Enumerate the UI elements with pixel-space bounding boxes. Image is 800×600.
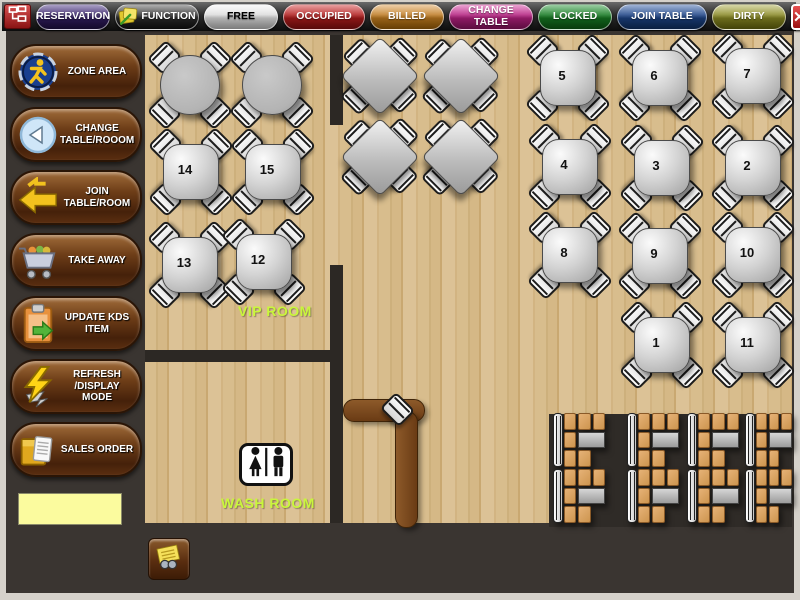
table-2[interactable]: 2: [714, 129, 792, 207]
cushion: [712, 413, 724, 430]
toolbar-button-locked[interactable]: LOCKED: [538, 4, 612, 30]
pos-floor-plan-window: VIP ROOM WASH ROOM 141513125674328910111: [0, 0, 800, 600]
table-top: 9: [632, 228, 688, 284]
booth-backrest-icon: [627, 469, 637, 523]
table-round-0[interactable]: [151, 46, 229, 124]
toolbar-button-join_table[interactable]: JOIN TABLE: [617, 4, 707, 30]
table-number: 1: [652, 335, 659, 350]
sticky-note-button[interactable]: [148, 538, 190, 580]
sidebar-button-label: SALES ORDER: [60, 444, 134, 456]
cushion: [638, 506, 650, 523]
sidebar-button-update_kds_item[interactable]: UPDATE KDS ITEM: [10, 296, 142, 351]
corner-counter: [395, 411, 418, 528]
lightning-icon: [16, 364, 60, 410]
table-number: 4: [560, 157, 567, 172]
note-input[interactable]: [18, 493, 122, 525]
vip-room-label: VIP ROOM: [238, 303, 312, 319]
wall: [330, 265, 343, 523]
table-top: 6: [632, 50, 688, 106]
toolbar-button-label: DIRTY: [733, 11, 765, 22]
toolbar-button-function[interactable]: FUNCTION: [115, 4, 199, 30]
sidebar-button-label: JOIN TABLE/ROOM: [60, 186, 134, 209]
table-number: 7: [743, 66, 750, 81]
restroom-icon: [243, 444, 289, 485]
toolbar: RESERVATIONFUNCTIONFREEOCCUPIEDBILLEDCHA…: [2, 2, 796, 31]
sidebar-button-change_table_room[interactable]: CHANGE TABLE/ROOOM: [10, 107, 142, 162]
booth-cushions: [564, 413, 605, 467]
table-round-1[interactable]: [233, 46, 311, 124]
booth-cushions: [638, 469, 679, 523]
cushion: [593, 413, 605, 430]
cushion: [769, 469, 780, 486]
cushion: [638, 432, 650, 449]
cushion: [578, 413, 590, 430]
booth-backrest-icon: [687, 469, 697, 523]
cushion: [593, 469, 605, 486]
merge-arrow-icon: [16, 175, 60, 221]
table-top: 12: [236, 234, 292, 290]
close-button[interactable]: ✕: [791, 4, 800, 30]
table-10[interactable]: 10: [714, 216, 792, 294]
booth-seat-4[interactable]: [745, 413, 792, 467]
table-top: 1: [634, 317, 690, 373]
booth-backrest-icon: [553, 469, 563, 523]
cushion: [638, 413, 650, 430]
cushion: [769, 506, 780, 523]
cushion: [698, 469, 710, 486]
table-top: 4: [542, 139, 598, 195]
booth-table: [769, 488, 792, 505]
cushion: [781, 469, 792, 486]
wall: [145, 350, 343, 362]
cart-icon: [16, 238, 60, 284]
close-icon: ✕: [793, 8, 800, 26]
cushion: [652, 469, 664, 486]
cushion: [638, 450, 650, 467]
table-3[interactable]: 3: [623, 129, 701, 207]
cushion: [667, 413, 679, 430]
toolbar-button-label: RESERVATION: [36, 11, 110, 22]
sidebar-button-refresh_display_mode[interactable]: REFRESH /DISPLAY MODE: [10, 359, 142, 414]
cushion: [756, 413, 767, 430]
booth-table: [712, 488, 739, 505]
table-top: 14: [163, 144, 219, 200]
table-number: 5: [558, 68, 565, 83]
toolbar-button-label: OCCUPIED: [296, 11, 351, 22]
sidebar-button-join_table_room[interactable]: JOIN TABLE/ROOM: [10, 170, 142, 225]
cushion: [769, 413, 780, 430]
toolbar-button-label: LOCKED: [553, 11, 597, 22]
table-12[interactable]: 12: [225, 223, 303, 301]
table-top: [242, 55, 302, 115]
booth-seat-3[interactable]: [687, 413, 739, 467]
cushion: [564, 469, 576, 486]
table-number: 14: [178, 162, 192, 177]
cushion: [781, 413, 792, 430]
table-number: 10: [740, 245, 754, 260]
booth-table: [769, 432, 792, 449]
table-number: 11: [740, 335, 754, 350]
clipboard-icon: [16, 301, 60, 347]
cushion: [638, 469, 650, 486]
table-8[interactable]: 8: [531, 216, 609, 294]
table-13[interactable]: 13: [151, 226, 229, 304]
cushion: [712, 450, 724, 467]
booth-cushions: [756, 413, 792, 467]
app-logo: [4, 4, 31, 29]
sidebar-button-label: UPDATE KDS ITEM: [60, 312, 134, 335]
table-number: 8: [560, 245, 567, 260]
cushion: [564, 432, 576, 449]
booth-cushions: [638, 413, 679, 467]
table-number: 13: [177, 255, 191, 270]
cushion: [769, 450, 780, 467]
sidebar-button-sales_order[interactable]: SALES ORDER: [10, 422, 142, 477]
table-top: 5: [540, 50, 596, 106]
cushion: [578, 506, 590, 523]
wash-room-label: WASH ROOM: [221, 495, 315, 511]
booth-cushions: [698, 413, 739, 467]
booth-seat-6[interactable]: [627, 469, 679, 523]
booth-backrest-icon: [627, 413, 637, 467]
cushion: [564, 450, 576, 467]
cushion: [698, 488, 710, 505]
cushion: [756, 450, 767, 467]
sidebar-button-zone_area[interactable]: ZONE AREA: [10, 44, 142, 99]
booth-seat-8[interactable]: [745, 469, 792, 523]
toolbar-button-occupied[interactable]: OCCUPIED: [283, 4, 365, 30]
table-14[interactable]: 14: [152, 133, 230, 211]
toolbar-button-label: CHANGE TABLE: [453, 5, 529, 27]
toolbar-button-reservation[interactable]: RESERVATION: [36, 4, 110, 30]
toolbar-button-label: BILLED: [388, 11, 426, 22]
toolbar-button-change_table[interactable]: CHANGE TABLE: [449, 4, 533, 30]
table-number: 2: [743, 158, 750, 173]
cushion: [712, 506, 724, 523]
toolbar-button-label: FUNCTION: [141, 11, 195, 22]
table-9[interactable]: 9: [621, 217, 699, 295]
booth-table: [652, 488, 679, 505]
booth-backrest-icon: [553, 413, 563, 467]
booth-table: [578, 488, 605, 505]
cushion: [698, 413, 710, 430]
booth-backrest-icon: [745, 413, 755, 467]
table-7[interactable]: 7: [714, 37, 792, 115]
toolbar-button-free[interactable]: FREE: [204, 4, 278, 30]
cushion: [667, 469, 679, 486]
cushion: [564, 488, 576, 505]
booth-seat-2[interactable]: [627, 413, 679, 467]
booth-table: [578, 432, 605, 449]
cushion: [756, 506, 767, 523]
table-top: 11: [725, 317, 781, 373]
runner-icon: [16, 49, 60, 95]
table-top: 10: [725, 227, 781, 283]
table-top: 15: [245, 144, 301, 200]
sidebar-button-label: CHANGE TABLE/ROOOM: [60, 123, 134, 146]
table-top: 7: [725, 48, 781, 104]
cushion: [638, 488, 650, 505]
table-1[interactable]: 1: [623, 306, 701, 384]
flowchart-icon: [7, 4, 28, 30]
table-number: 6: [650, 68, 657, 83]
booth-seat-1[interactable]: [553, 413, 605, 467]
booth-backrest-icon: [745, 469, 755, 523]
table-15[interactable]: 15: [234, 133, 312, 211]
cushion: [578, 450, 590, 467]
notes-icon: [118, 6, 139, 27]
cushion: [698, 432, 710, 449]
sidebar-buttons: ZONE AREACHANGE TABLE/ROOOMJOIN TABLE/RO…: [10, 44, 142, 477]
sticky-note-icon: [154, 542, 184, 577]
cushion: [652, 450, 664, 467]
back-circle-icon: [16, 112, 60, 158]
sidebar-button-label: ZONE AREA: [60, 66, 134, 78]
cushion: [712, 469, 724, 486]
cushion: [652, 413, 664, 430]
sidebar-button-label: REFRESH /DISPLAY MODE: [60, 369, 134, 404]
toolbar-button-dirty[interactable]: DIRTY: [712, 4, 786, 30]
table-top: 13: [162, 237, 218, 293]
cushion: [564, 506, 576, 523]
wash-room-sign: [239, 443, 293, 486]
order-box-icon: [16, 427, 60, 473]
table-6[interactable]: 6: [621, 39, 699, 117]
cushion: [756, 432, 767, 449]
cushion: [652, 506, 664, 523]
booth-cushions: [564, 469, 605, 523]
cushion: [698, 450, 710, 467]
booth-cushions: [698, 469, 739, 523]
booth-backrest-icon: [687, 413, 697, 467]
table-5[interactable]: 5: [529, 39, 607, 117]
toolbar-buttons: RESERVATIONFUNCTIONFREEOCCUPIEDBILLEDCHA…: [36, 4, 786, 30]
cushion: [698, 506, 710, 523]
table-number: 15: [260, 162, 274, 177]
toolbar-button-label: JOIN TABLE: [631, 11, 693, 22]
table-top: [160, 55, 220, 115]
cushion: [727, 413, 739, 430]
table-11[interactable]: 11: [714, 306, 792, 384]
cushion: [727, 469, 739, 486]
table-4[interactable]: 4: [531, 128, 609, 206]
table-number: 3: [652, 158, 659, 173]
booth-cushions: [756, 469, 792, 523]
cushion: [756, 488, 767, 505]
booth-table: [712, 432, 739, 449]
toolbar-button-label: FREE: [227, 11, 255, 22]
sidebar: ZONE AREACHANGE TABLE/ROOOMJOIN TABLE/RO…: [10, 44, 142, 525]
sidebar-button-take_away[interactable]: TAKE AWAY: [10, 233, 142, 288]
toolbar-button-billed[interactable]: BILLED: [370, 4, 444, 30]
booth-seat-5[interactable]: [553, 469, 605, 523]
table-top: 3: [634, 140, 690, 196]
table-top: 8: [542, 227, 598, 283]
booth-table: [652, 432, 679, 449]
table-number: 12: [251, 252, 265, 267]
table-top: 2: [725, 140, 781, 196]
cushion: [756, 469, 767, 486]
booth-seat-7[interactable]: [687, 469, 739, 523]
cushion: [564, 413, 576, 430]
table-number: 9: [650, 246, 657, 261]
cushion: [578, 469, 590, 486]
sidebar-button-label: TAKE AWAY: [60, 255, 134, 267]
